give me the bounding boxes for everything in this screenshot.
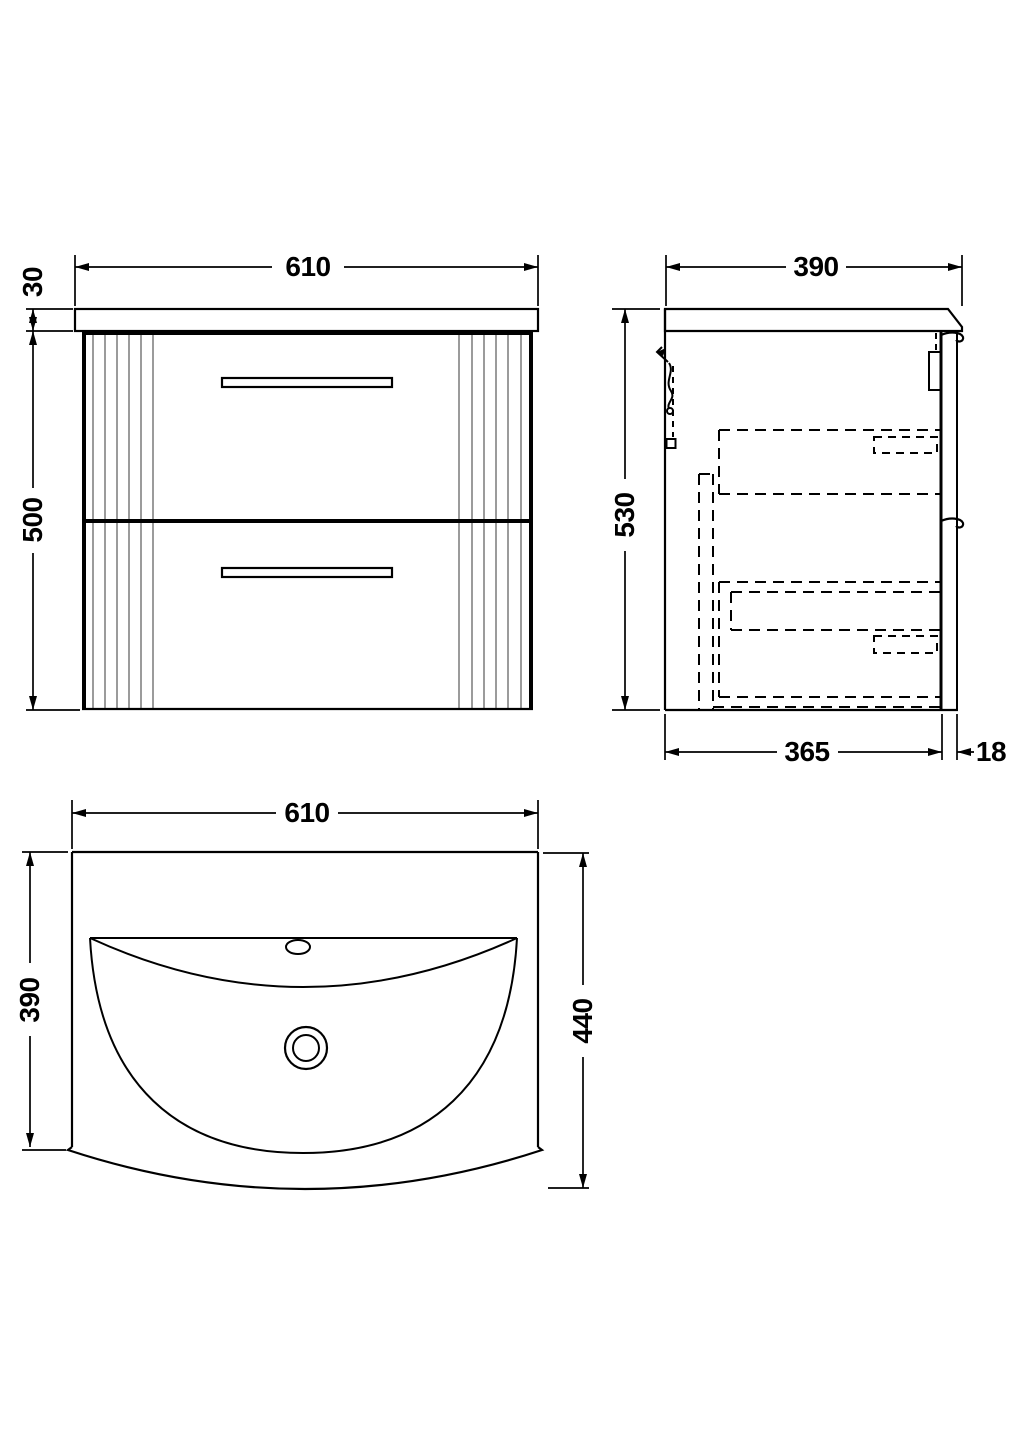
basin-outline [68, 852, 542, 1189]
hidden-drawer-runner-top [874, 437, 937, 453]
side-height-dimension: 530 [609, 309, 660, 710]
plan-overall-depth-dimension: 440 [543, 853, 598, 1188]
plan-width-dimension: 610 [72, 797, 538, 849]
front-worktop-dimension: 30 [17, 267, 73, 331]
bowl-rim-curve [90, 938, 517, 1153]
side-carcass-depth-dimension: 365 18 [665, 714, 1006, 767]
arrowhead [72, 809, 86, 817]
arrowhead [29, 331, 37, 345]
front-view: 610 30 500 [17, 251, 538, 710]
bowl-ledge-curve [90, 938, 517, 987]
vanity-unit-technical-drawing: 610 30 500 [0, 0, 1024, 1449]
technical-drawing-page: 610 30 500 [0, 0, 1024, 1449]
plan-basin-depth-label: 390 [14, 977, 45, 1022]
front-worktop-label: 30 [17, 267, 48, 297]
hidden-drawer-runner-bottom [874, 636, 937, 653]
side-carcass-depth-label: 365 [784, 736, 829, 767]
arrowhead [621, 696, 629, 710]
tap-hole [286, 940, 310, 954]
side-hanging-bracket [657, 347, 676, 448]
arrowhead [928, 748, 942, 756]
side-worktop [665, 309, 962, 331]
arrowhead [524, 809, 538, 817]
arrowhead [29, 696, 37, 710]
side-handle-profile-bottom [941, 519, 963, 528]
front-drawer1-handle [222, 378, 392, 387]
basin-bowl [90, 938, 517, 1153]
arrowhead [29, 317, 37, 331]
waste-hole-outer [285, 1027, 327, 1069]
arrowhead [75, 263, 89, 271]
arrowhead [26, 1133, 34, 1147]
side-height-label: 530 [609, 492, 640, 537]
front-height-label: 500 [17, 497, 48, 542]
front-worktop [75, 309, 538, 331]
arrowhead [579, 1174, 587, 1188]
front-width-label: 610 [285, 251, 330, 282]
plan-view-basin: 610 390 440 [14, 797, 598, 1189]
arrowhead [26, 852, 34, 866]
plan-width-label: 610 [284, 797, 329, 828]
side-view: 390 530 365 18 [609, 251, 1006, 767]
arrowhead [524, 263, 538, 271]
front-width-dimension: 610 [75, 251, 538, 306]
arrowhead [621, 309, 629, 323]
plan-overall-depth-label: 440 [567, 998, 598, 1043]
side-fixing-batten [929, 352, 941, 390]
side-front-thickness-label: 18 [976, 736, 1006, 767]
side-depth-dimension: 390 [666, 251, 962, 306]
arrowhead [666, 263, 680, 271]
arrowhead [948, 263, 962, 271]
front-height-dimension: 500 [17, 331, 80, 710]
arrowhead [665, 748, 679, 756]
arrowhead [579, 853, 587, 867]
side-handle-profile-top [941, 333, 963, 342]
plan-basin-depth-dimension: 390 [14, 852, 68, 1150]
front-drawer2-handle [222, 568, 392, 577]
side-drawer-boxes-hidden [699, 430, 941, 710]
waste-hole-inner [293, 1035, 319, 1061]
bracket-foot [667, 439, 676, 448]
arrowhead [957, 748, 971, 756]
bracket-lever [668, 363, 672, 409]
side-depth-label: 390 [793, 251, 838, 282]
